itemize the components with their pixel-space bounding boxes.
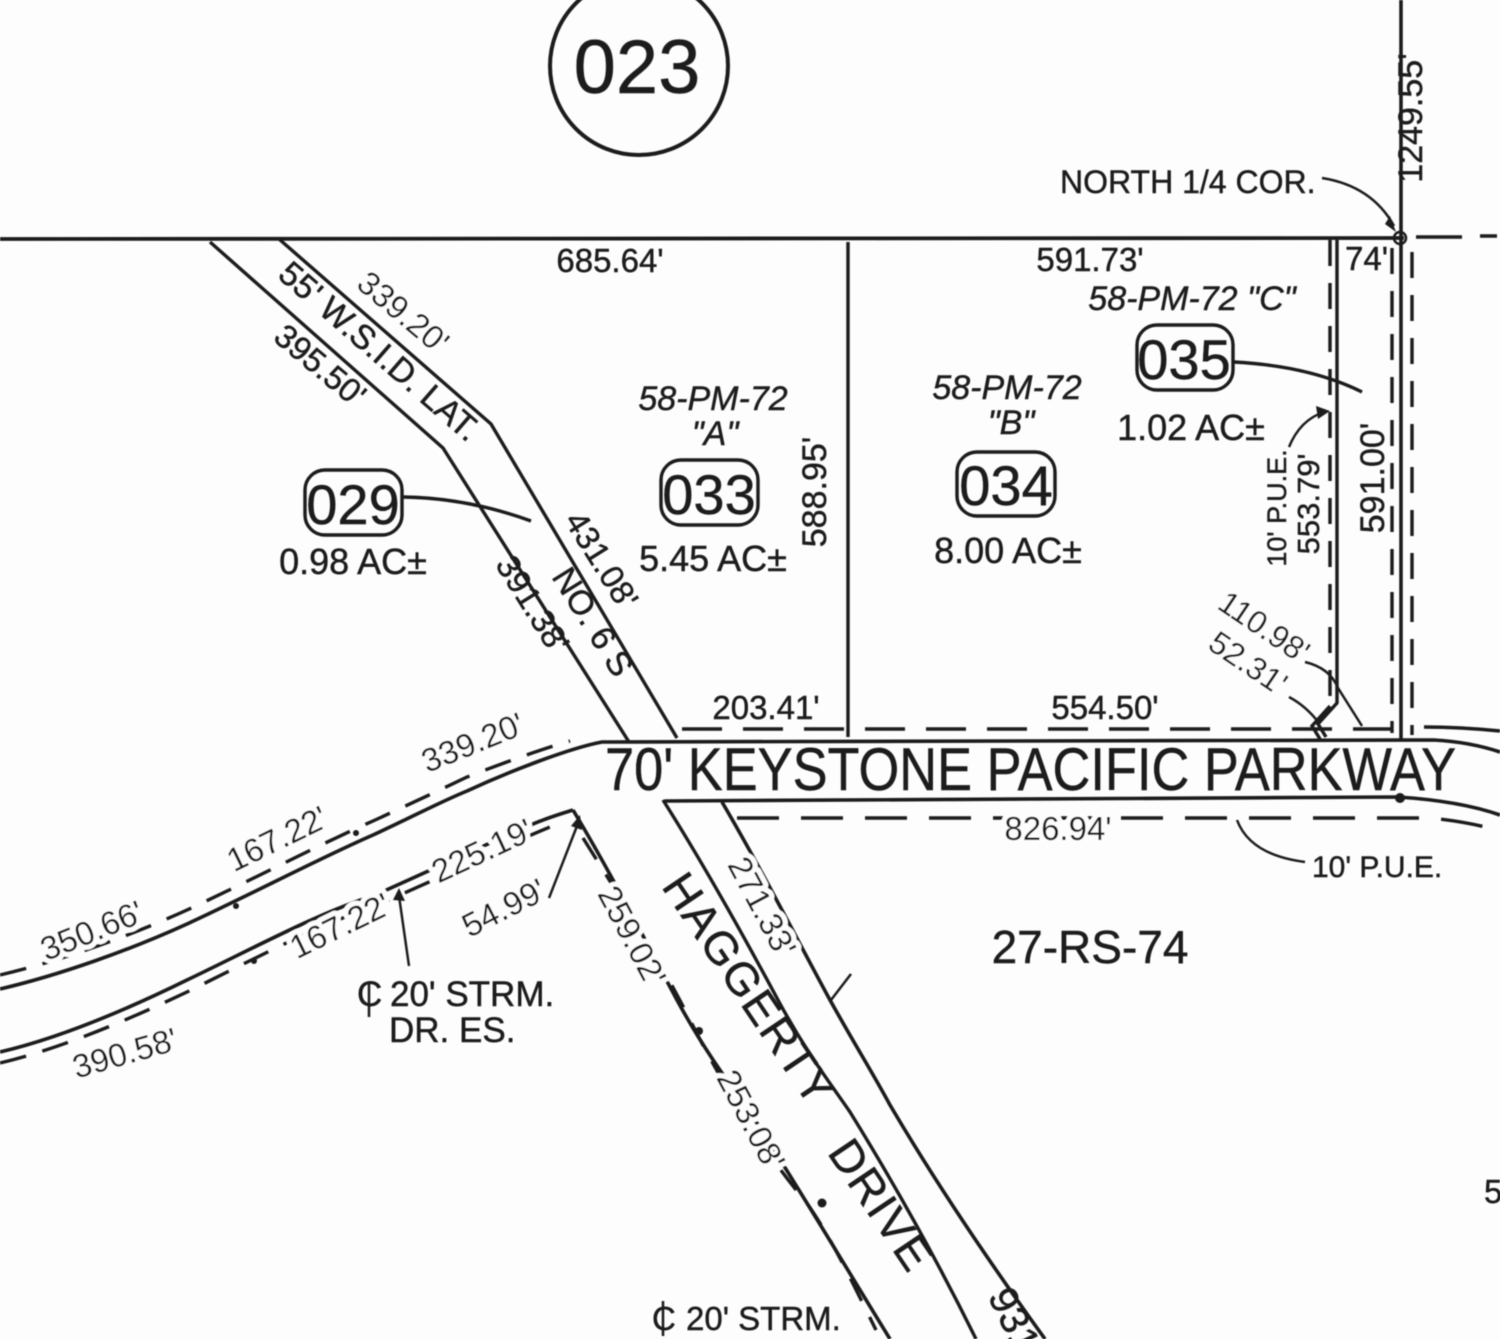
- svg-text:10' P.U.E.: 10' P.U.E.: [1312, 851, 1442, 884]
- svg-text:DR. ES.: DR. ES.: [389, 1011, 515, 1050]
- svg-text:591.00': 591.00': [1354, 423, 1392, 533]
- svg-text:74': 74': [1345, 240, 1388, 277]
- svg-text:203.41': 203.41': [712, 689, 819, 726]
- svg-text:826.94': 826.94': [1004, 810, 1111, 847]
- svg-text:553.79': 553.79': [1291, 454, 1326, 555]
- svg-text:034: 034: [959, 454, 1052, 517]
- svg-text:588.95': 588.95': [796, 437, 834, 547]
- svg-text:27-RS-74: 27-RS-74: [992, 921, 1189, 973]
- svg-text:029: 029: [306, 473, 399, 536]
- svg-text:1249.55': 1249.55': [1392, 53, 1430, 182]
- svg-text:20' STRM.: 20' STRM.: [686, 1300, 841, 1337]
- svg-text:5.45 AC±: 5.45 AC±: [639, 538, 787, 579]
- svg-text:10' P.U.E.: 10' P.U.E.: [1262, 449, 1292, 566]
- svg-text:5: 5: [1484, 1173, 1500, 1210]
- svg-text:591.73': 591.73': [1036, 241, 1143, 278]
- svg-text:1.02 AC±: 1.02 AC±: [1117, 407, 1265, 448]
- svg-text:023: 023: [574, 25, 701, 110]
- svg-text:"B": "B": [988, 404, 1037, 442]
- svg-text:58-PM-72 "C": 58-PM-72 "C": [1088, 280, 1297, 318]
- svg-text:035: 035: [1137, 328, 1230, 391]
- svg-text:NORTH 1/4 COR.: NORTH 1/4 COR.: [1060, 164, 1315, 200]
- svg-text:8.00 AC±: 8.00 AC±: [934, 530, 1082, 571]
- svg-text:554.50': 554.50': [1051, 689, 1158, 726]
- svg-text:033: 033: [662, 463, 755, 526]
- svg-text:20' STRM.: 20' STRM.: [390, 975, 554, 1014]
- svg-text:58-PM-72: 58-PM-72: [638, 380, 787, 418]
- svg-text:"A": "A": [692, 415, 741, 453]
- svg-text:0.98 AC±: 0.98 AC±: [279, 541, 427, 582]
- svg-text:58-PM-72: 58-PM-72: [932, 369, 1081, 407]
- svg-text:70' KEYSTONE PACIFIC PARKWAY: 70' KEYSTONE PACIFIC PARKWAY: [605, 736, 1456, 803]
- svg-text:685.64': 685.64': [556, 242, 663, 279]
